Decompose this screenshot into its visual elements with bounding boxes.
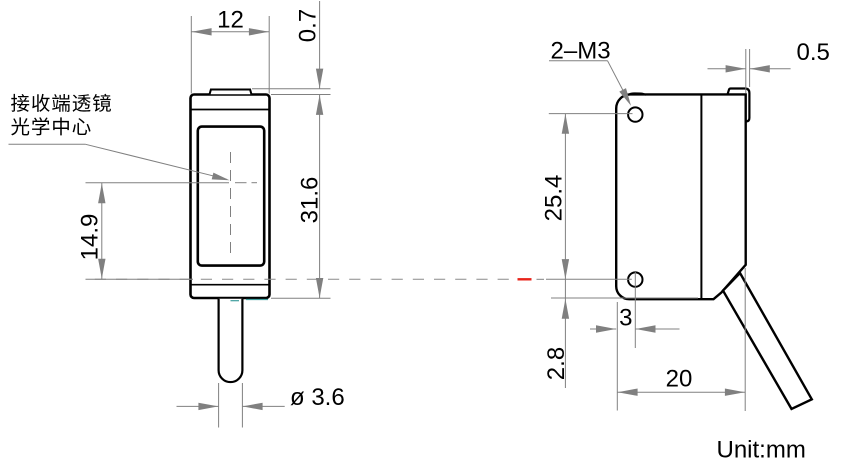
svg-text:3: 3 (619, 305, 632, 332)
svg-text:2.8: 2.8 (543, 347, 570, 380)
svg-text:0.7: 0.7 (295, 9, 322, 42)
svg-text:20: 20 (666, 366, 693, 393)
svg-text:12: 12 (217, 7, 244, 34)
svg-text:25.4: 25.4 (541, 175, 568, 222)
svg-text:ø 3.6: ø 3.6 (290, 384, 345, 411)
svg-text:Unit:mm: Unit:mm (717, 437, 806, 464)
svg-text:14.9: 14.9 (77, 214, 104, 261)
svg-text:0.5: 0.5 (797, 39, 830, 66)
svg-text:31.6: 31.6 (297, 177, 324, 224)
